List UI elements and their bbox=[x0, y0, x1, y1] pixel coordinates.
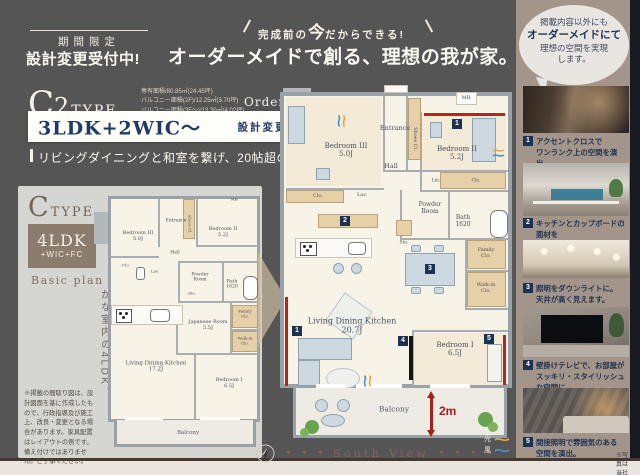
bathtub-icon bbox=[490, 210, 508, 238]
caption-2-number: 2 bbox=[523, 218, 533, 228]
balcony-plant bbox=[488, 422, 498, 432]
catch-slash-right bbox=[425, 19, 433, 32]
south-view-arrow-icon: ▼ bbox=[285, 450, 292, 457]
photo-1-image bbox=[523, 86, 629, 133]
plan-disclaimer: ※掲載の間取り図は、設計図面を基に作成したもので、行政指導及び施工上、改良・変更… bbox=[24, 389, 96, 467]
room-label-ldk: Living Dining Kitchen20.7J bbox=[308, 317, 397, 336]
room-label-sto: Sto. bbox=[400, 240, 409, 245]
kitchen-backsplash bbox=[551, 189, 603, 200]
plan-marker-5: 5 bbox=[484, 334, 494, 344]
c2-tagline-bar bbox=[30, 149, 33, 162]
tv-room-plant bbox=[609, 313, 624, 337]
room-label-entrance: Entrance bbox=[166, 218, 187, 223]
room-label-japanese: Japanese Room5.5J bbox=[189, 320, 228, 332]
catch-big: 今 bbox=[308, 18, 325, 43]
plan-marker-3: 3 bbox=[425, 264, 435, 274]
room-label-bedroom1: Bedroom I6.5J bbox=[436, 341, 473, 358]
wall bbox=[178, 261, 258, 263]
tv-room-sofa bbox=[523, 345, 629, 357]
depth-arrow-line bbox=[430, 395, 433, 433]
wall bbox=[178, 261, 180, 302]
badge-subtitle: 設計変更受付中! bbox=[26, 48, 140, 69]
room-label-bath: Bath1620 bbox=[455, 214, 470, 228]
caption-3-text: 照明をダウンライトに。天井が高く見えます。 bbox=[536, 283, 617, 305]
room-label-powder: PowderRoom bbox=[419, 201, 442, 215]
toilet-icon bbox=[136, 267, 145, 280]
bed-bedroom1 bbox=[487, 344, 502, 382]
room-label-hall: Hall bbox=[170, 250, 180, 255]
caption-5-text: 間接照明で雰囲気のある空間を演出。 bbox=[536, 437, 617, 459]
room-label-shoes: Shoes Cl. bbox=[187, 214, 192, 233]
c-letter: C bbox=[28, 192, 49, 223]
c-layout-sub: +WIC+FC bbox=[28, 250, 96, 259]
wall bbox=[448, 190, 450, 238]
wall bbox=[197, 245, 258, 247]
bubble-line2: オーダーメイドにて bbox=[519, 28, 629, 42]
stove-icon bbox=[300, 242, 317, 256]
room-label-walkin: Walk-inClo. bbox=[477, 283, 496, 295]
room-label-clo: Clo. bbox=[122, 264, 130, 269]
caption-3-number: 3 bbox=[523, 283, 533, 293]
room-label-bedroom3: Bedroom III5.0J bbox=[123, 231, 154, 243]
accent-wall-bedroom2 bbox=[424, 113, 505, 116]
wall bbox=[465, 308, 508, 310]
sink-icon bbox=[150, 309, 170, 322]
room-label-mb: MB bbox=[462, 96, 471, 102]
south-view-arrow-icon: ▼ bbox=[470, 450, 477, 457]
balcony-plant bbox=[300, 428, 309, 437]
bathtub-icon bbox=[243, 276, 258, 300]
bubble-line4: します。 bbox=[519, 54, 629, 65]
catch-post: だからできる! bbox=[325, 27, 405, 42]
room-label-bath: Bath1620 bbox=[226, 280, 237, 291]
wind-wave-icon bbox=[494, 447, 510, 454]
depth-arrow-head-bottom bbox=[427, 430, 435, 437]
wall bbox=[178, 301, 258, 303]
desk-bedroom2 bbox=[430, 122, 442, 138]
area-line2: バルコニー面積(2F)/12.25㎡(3.70坪) bbox=[141, 97, 244, 106]
depth-label: 2m bbox=[439, 404, 456, 418]
room-label-bedroom1: Bedroom I6.5J bbox=[216, 378, 243, 390]
wall-tv-screen bbox=[541, 315, 603, 343]
room-label-lin: Lin. bbox=[432, 178, 441, 183]
wall bbox=[196, 199, 198, 247]
wall bbox=[383, 96, 385, 172]
sofa bbox=[298, 338, 352, 360]
legend-wind: 風 bbox=[484, 445, 510, 455]
bed-in-photo bbox=[563, 416, 629, 433]
catch-main: オーダーメイドで創る、理想の我が家。 bbox=[168, 42, 518, 69]
room-label-sto: Sto. bbox=[188, 292, 196, 297]
bubble-line1: 掲載内容以外にも bbox=[519, 17, 629, 28]
catch-pre: 完成前の bbox=[258, 27, 308, 42]
wall bbox=[222, 261, 224, 302]
balcony-table bbox=[321, 414, 345, 427]
legend-light-label: 光 bbox=[484, 434, 491, 444]
south-view-arrow-icon: ▼ bbox=[438, 450, 445, 457]
bed-bedroom3 bbox=[288, 106, 305, 144]
bubble-line3: 理想の空間を実現 bbox=[519, 43, 629, 54]
catch-small-line: 完成前の 今 だからできる! bbox=[258, 18, 405, 43]
catch-slash-left bbox=[243, 19, 251, 32]
room-label-lav: Lav. bbox=[357, 193, 367, 199]
wall bbox=[194, 354, 196, 419]
compass-icon bbox=[256, 444, 275, 468]
room-label-clo: Clo. bbox=[313, 194, 323, 200]
room-label-walkin: Walk-inClo. bbox=[238, 336, 253, 345]
plan-marker-1b: 1 bbox=[292, 326, 302, 336]
wall bbox=[176, 353, 258, 355]
bubble-text: 掲載内容以外にも オーダーメイドにて 理想の空間を実現 します。 bbox=[519, 17, 629, 66]
room-label-clo2: Clo. bbox=[472, 178, 481, 183]
kitchen-stool bbox=[333, 263, 344, 274]
photo-5-image bbox=[523, 388, 629, 433]
c-word: TYPE bbox=[51, 205, 95, 220]
wall bbox=[412, 330, 508, 332]
dining-chair bbox=[411, 287, 421, 294]
south-view-arrow-icon: ▼ bbox=[454, 450, 461, 457]
room-label-lav: Lav. bbox=[151, 270, 159, 275]
accent-wall-bedroom1 bbox=[503, 335, 506, 385]
photo-3-caption: 3 照明をダウンライトに。天井が高く見えます。 bbox=[523, 283, 629, 305]
c-layout-main: 4LDK bbox=[28, 231, 96, 250]
south-view-label: South View bbox=[333, 446, 429, 460]
room-label-bedroom3: Bedroom III5.0J bbox=[325, 142, 368, 159]
entrance-porch bbox=[384, 85, 408, 93]
south-view-row: ▼ ▼ ▼ South View ▼ ▼ ▼ ▼ bbox=[285, 446, 493, 460]
storage-fill bbox=[396, 220, 412, 236]
room-label-entrance: Entrance bbox=[380, 125, 410, 133]
kitchen-plant bbox=[609, 179, 623, 197]
dining-chair bbox=[411, 245, 421, 252]
light-wind-icon bbox=[358, 375, 376, 388]
kitchen-counter-edge bbox=[533, 201, 619, 204]
kitchen-stool bbox=[351, 263, 362, 274]
photo-note: ※写真は当社施工例 bbox=[616, 450, 628, 475]
room-label-family-clo: FamilyClo. bbox=[238, 309, 252, 318]
wall bbox=[111, 256, 159, 258]
photo-4-image bbox=[523, 307, 629, 357]
legend-light: 光 bbox=[484, 434, 510, 444]
photo-2-image bbox=[523, 163, 629, 216]
room-label-ldk: Living Dining Kitchen17.2J bbox=[126, 361, 187, 374]
room-label-bedroom2: Bedroom II5.2J bbox=[437, 145, 477, 162]
c2-layout-text: 3LDK+2WIC〜 bbox=[38, 114, 201, 141]
desk-bedroom3 bbox=[316, 168, 330, 180]
c-layout-box: 4LDK +WIC+FC bbox=[28, 224, 96, 268]
right-dark-strip bbox=[630, 0, 640, 475]
depth-arrow-head-top bbox=[427, 391, 435, 398]
caption-4-number: 4 bbox=[523, 360, 533, 370]
room-label-powder: PowderRoom bbox=[191, 273, 208, 284]
limited-badge: 期間限定 bbox=[30, 34, 148, 49]
room-label-balcony: Balcony bbox=[379, 406, 409, 415]
south-view-arrow-icon: ▼ bbox=[301, 450, 308, 457]
sofa bbox=[298, 360, 320, 386]
sink-icon bbox=[348, 242, 366, 255]
plan-marker-1: 1 bbox=[452, 119, 462, 129]
accent-wall-ldk bbox=[285, 297, 288, 386]
balcony-chair bbox=[315, 399, 328, 412]
flyer-canvas: 期間限定 設計変更受付中! 完成前の 今 だからできる! オーダーメイドで創る、… bbox=[0, 0, 640, 475]
caption-5-number: 5 bbox=[523, 437, 533, 447]
balcony-chair bbox=[337, 399, 350, 412]
plan-marker-4: 4 bbox=[398, 336, 408, 346]
photo-3-image bbox=[523, 240, 629, 278]
legend-wind-label: 風 bbox=[484, 445, 491, 455]
wall-tv bbox=[409, 336, 413, 380]
light-wave-icon bbox=[494, 436, 510, 443]
room-label-family-clo: FamilyClo. bbox=[478, 248, 495, 260]
room-label-mb: MB bbox=[230, 198, 237, 203]
light-wind-icon bbox=[492, 145, 505, 163]
badge-rule bbox=[30, 30, 148, 31]
room-label-bedroom2: Bedroom II5.2J bbox=[209, 227, 238, 239]
plan-marker-2: 2 bbox=[340, 216, 350, 226]
south-view-arrow-icon: ▼ bbox=[317, 450, 324, 457]
stove-icon bbox=[116, 309, 132, 323]
bottom-cream-strip bbox=[0, 461, 640, 475]
caption-1-number: 1 bbox=[523, 136, 533, 146]
photo-5-caption: 5 間接照明で雰囲気のある空間を演出。 bbox=[523, 437, 629, 459]
wall bbox=[420, 190, 508, 192]
area-line1: 専有面積/80.85㎡(24.45坪) bbox=[141, 88, 244, 97]
room-label-balcony: Balcony bbox=[177, 430, 199, 436]
dining-chair bbox=[434, 245, 444, 252]
basic-plan-tag: Basic plan bbox=[31, 274, 104, 287]
wall bbox=[158, 199, 160, 247]
light-wind-icon bbox=[332, 115, 350, 128]
room-label-shoes: Shoes Cl. bbox=[411, 127, 417, 151]
dining-chair bbox=[434, 287, 444, 294]
room-label-hall: Hall bbox=[384, 163, 398, 171]
c-type-title: C TYPE bbox=[28, 192, 94, 223]
